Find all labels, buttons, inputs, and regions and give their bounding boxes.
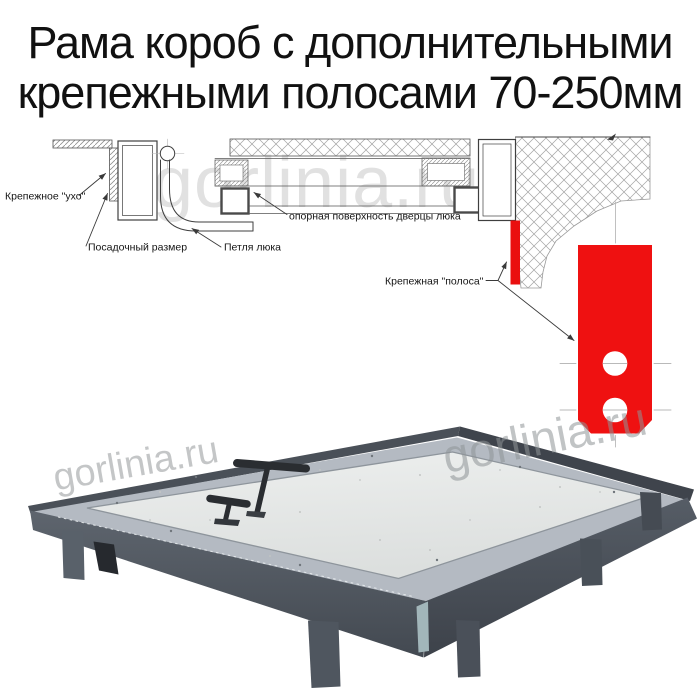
door-angle-left <box>215 160 248 186</box>
frame-profile-left <box>118 141 157 220</box>
fastening-ear <box>110 148 119 201</box>
leg-right <box>580 539 603 587</box>
fastening-strip <box>511 221 521 285</box>
label-hinge: Петля люка <box>224 242 281 254</box>
ceiling-slab-right <box>230 139 470 156</box>
leg-front-right <box>456 620 481 678</box>
frame-tube-left <box>222 189 249 214</box>
technical-diagram: Крепежное "ухо" Посадочный размер Петля … <box>5 134 671 448</box>
label-mount-size: Посадочный размер <box>88 242 187 254</box>
ceiling-slab-left <box>53 140 112 148</box>
leg-front-left <box>308 621 341 689</box>
t-handle-front-stem <box>226 505 230 520</box>
door-angle-right <box>422 158 470 186</box>
frame-tube-right <box>455 188 480 213</box>
leg-far-right <box>640 492 662 531</box>
page-title-line1: Рама короб с дополнительными <box>0 18 700 68</box>
leg-far-left <box>62 531 85 581</box>
label-support-surface: опорная поверхность дверцы люка <box>289 211 461 223</box>
frame-profile-right <box>479 140 516 221</box>
t-handle-back-bar <box>237 463 306 469</box>
product-card: Рама короб с дополнительными крепежными … <box>0 0 700 700</box>
hatch-door-section <box>215 158 480 214</box>
product-photo <box>28 427 697 689</box>
label-fastening-strip: Крепежная "полоса" <box>385 276 484 288</box>
fastening-strip-detail <box>560 202 671 447</box>
page-title-line2: крепежными полосами 70-250мм <box>0 68 700 118</box>
tube-opening <box>417 602 430 653</box>
label-fastening-ear: Крепежное "ухо" <box>5 191 86 203</box>
